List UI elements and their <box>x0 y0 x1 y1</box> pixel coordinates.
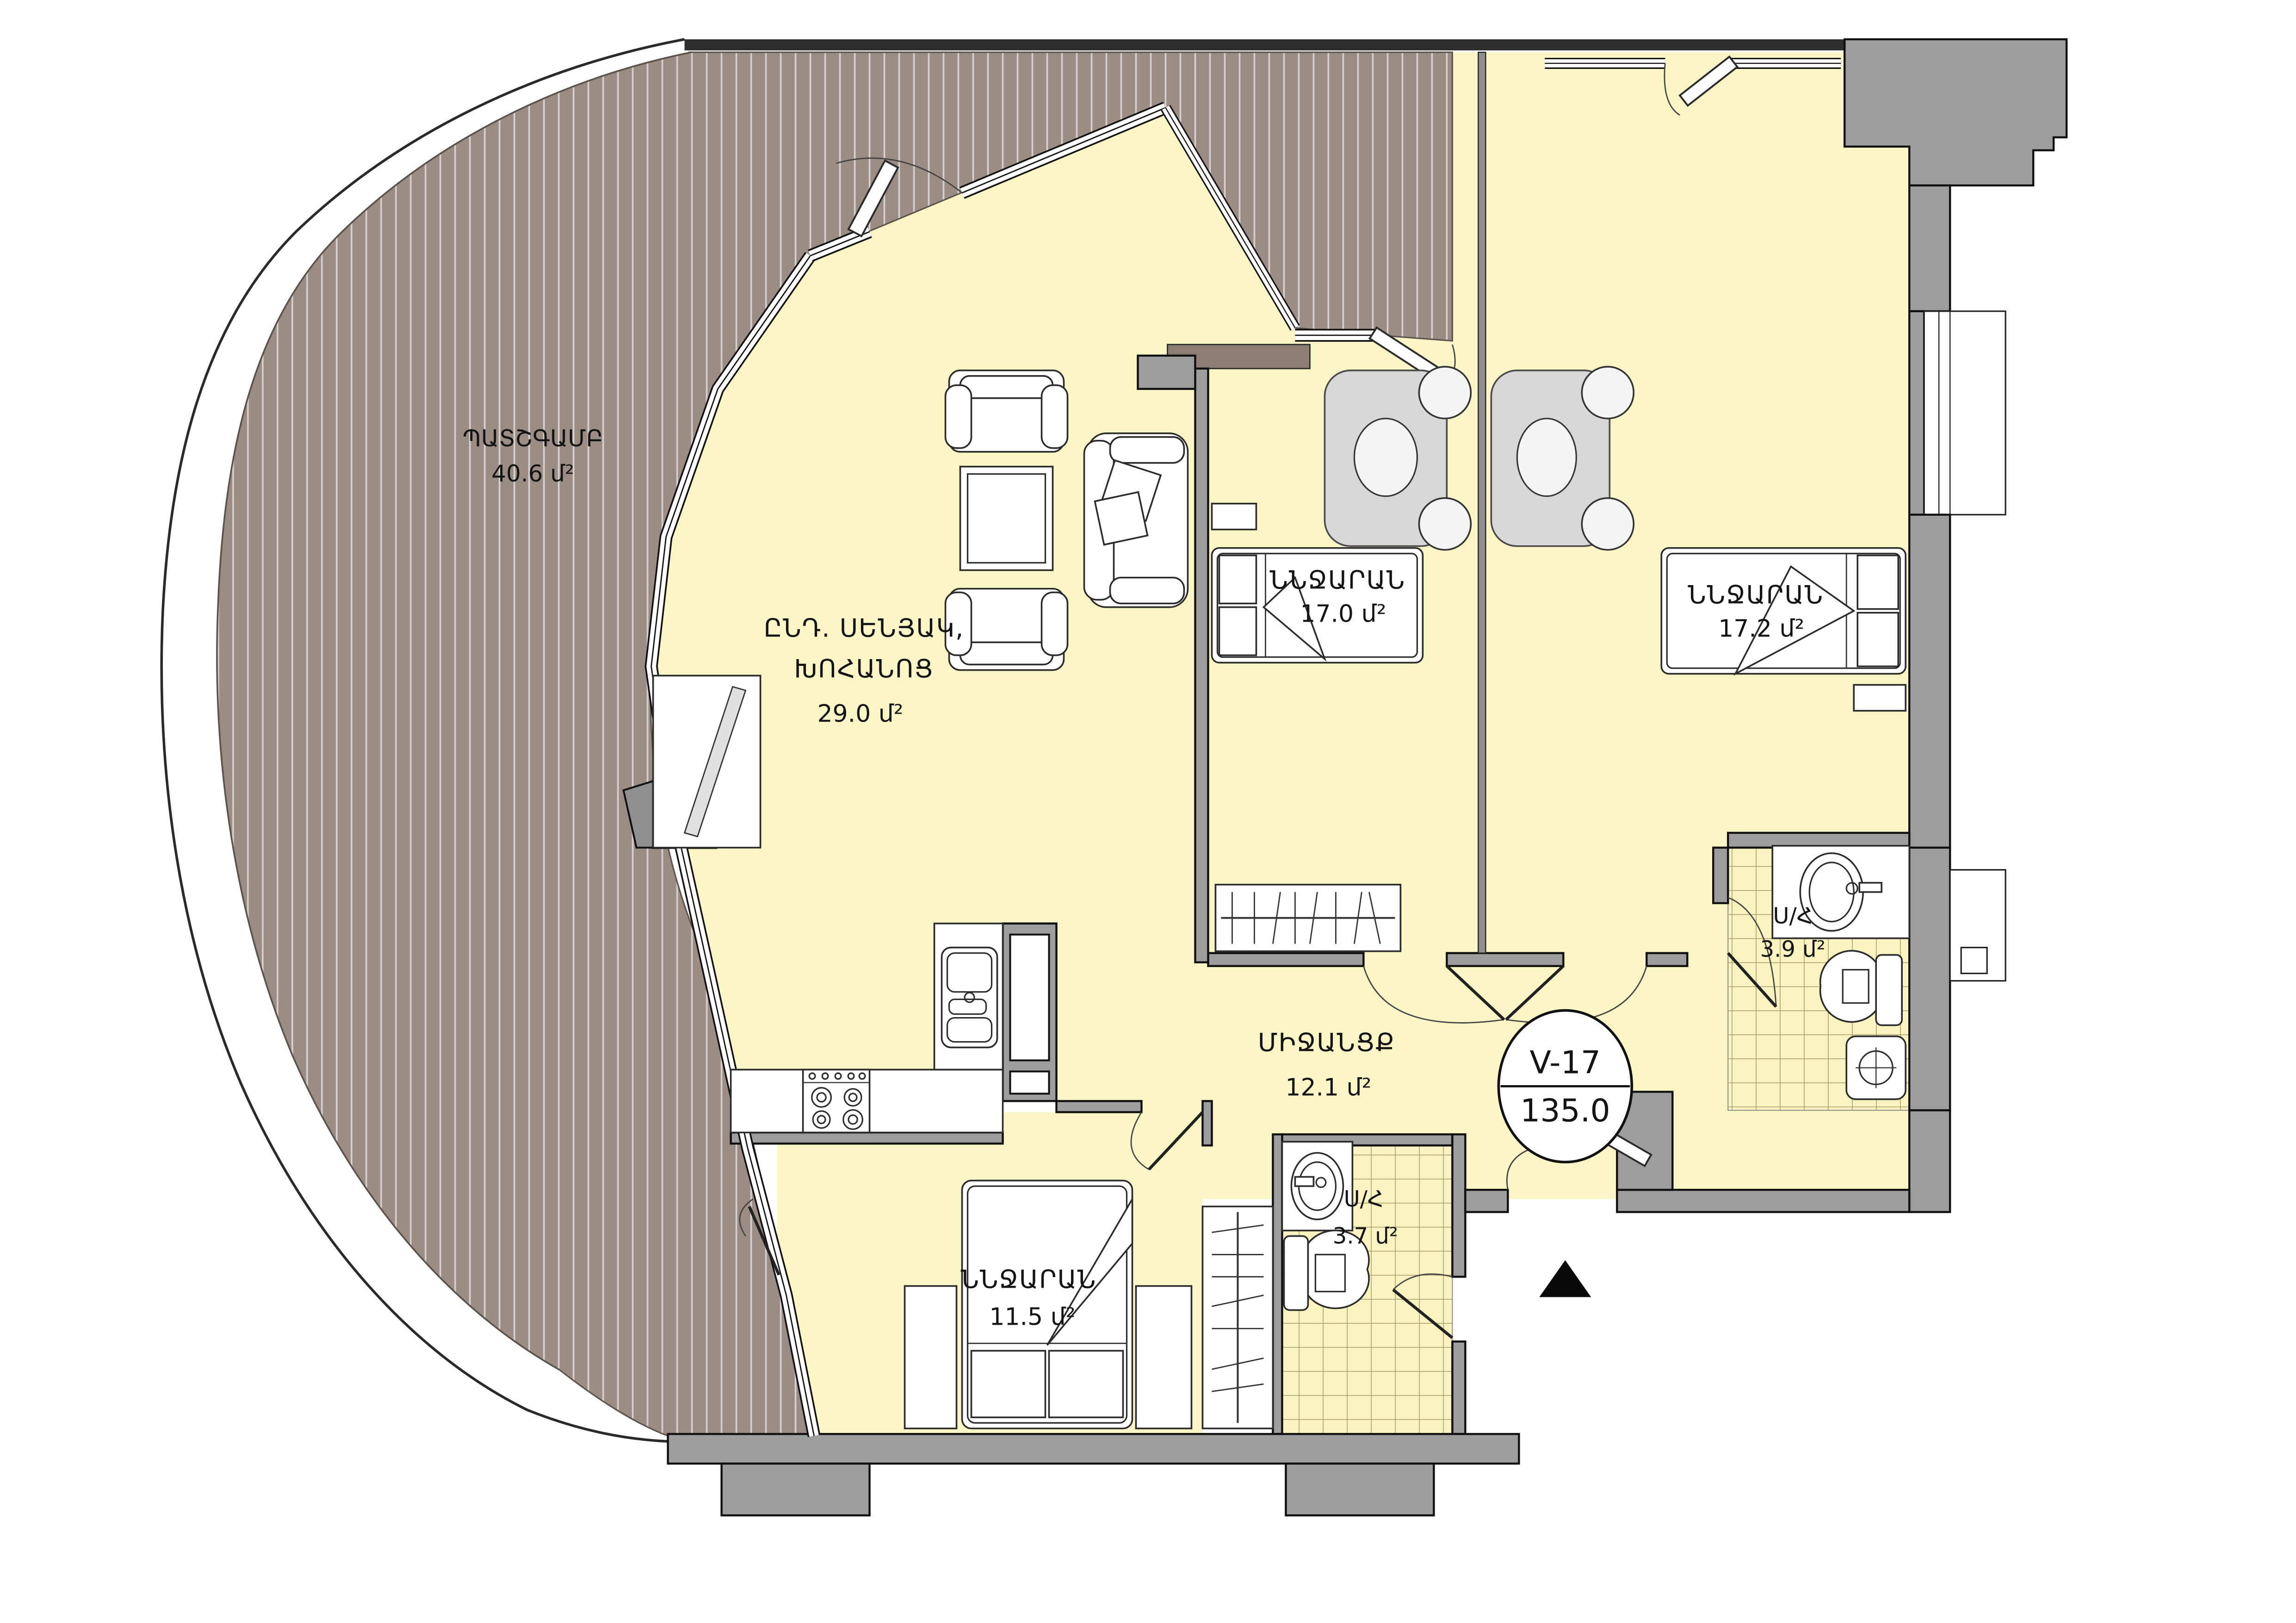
wall-bath2-right-b <box>1452 1341 1465 1434</box>
nightstand-icon <box>1854 685 1906 711</box>
label-bedroom3-area: 11.5 մ² <box>990 1303 1076 1331</box>
unit-total-area: 135.0 <box>1520 1092 1610 1129</box>
label-bath2-area: 3.7 մ² <box>1333 1223 1398 1249</box>
label-balcony-area: 40.6 մ² <box>491 460 574 487</box>
pillow-icon <box>1049 1351 1123 1417</box>
label-hall-area: 12.1 մ² <box>1285 1074 1371 1101</box>
wall-living-bedroom1 <box>1195 369 1208 963</box>
wall-bay-thin <box>1909 311 1924 515</box>
label-bath2-name: Ս/Հ <box>1344 1186 1384 1212</box>
wall-right-mid <box>1909 515 1950 848</box>
wall-right-lower <box>1909 1110 1950 1212</box>
chair-icon <box>1582 367 1634 419</box>
wall-pillar-bottom-2 <box>1286 1463 1434 1515</box>
unit-stamp: V-17 135.0 <box>1498 1010 1632 1162</box>
label-hall-name: ՄԻՋԱՆՑՔ <box>1258 1028 1395 1057</box>
label-living-name-1: ԸՆԴ. ՍԵՆՅԱԿ, <box>764 614 964 643</box>
pillow-icon <box>1219 555 1256 604</box>
kitchen-sink-icon <box>942 947 997 1047</box>
label-bedroom1-name: ՆՆՋԱՐԱՆ <box>1270 566 1406 595</box>
unit-code: V-17 <box>1530 1044 1601 1081</box>
washing-machine-icon <box>1846 1036 1906 1099</box>
wardrobe-icon <box>1202 1206 1273 1428</box>
wall-bath2-right-a <box>1452 1134 1465 1277</box>
pillow-icon <box>1857 613 1898 666</box>
label-bedroom3-name: ՆՆՋԱՐԱՆ <box>961 1265 1097 1294</box>
floor-plan-page: V-17 135.0 ՊԱՏՇԳԱՄԲ 40.6 մ² ԸՆԴ. ՍԵՆՅԱԿ,… <box>0 0 2296 1623</box>
label-bath1-area: 3.9 մ² <box>1760 936 1826 962</box>
bed-icon <box>1661 548 1906 674</box>
wardrobe-icon <box>1215 884 1400 951</box>
chair-icon <box>1419 367 1471 419</box>
pillow-icon <box>1857 555 1898 609</box>
wall-bath1-left <box>1713 847 1728 903</box>
wall-right-upper <box>1909 185 1950 311</box>
wall-entry-left <box>1465 1190 1508 1212</box>
wall-bottom <box>668 1434 1519 1463</box>
armchair-icon <box>946 370 1068 452</box>
chair-icon <box>1419 498 1471 550</box>
label-bedroom1-area: 17.0 մ² <box>1300 600 1386 628</box>
label-bedroom2-area: 17.2 մ² <box>1718 615 1804 643</box>
stove-icon <box>803 1069 870 1132</box>
wall-hall-1 <box>1208 953 1363 966</box>
coffee-table-icon <box>960 467 1053 570</box>
floor-plan-svg: V-17 135.0 ՊԱՏՇԳԱՄԲ 40.6 մ² ԸՆԴ. ՍԵՆՅԱԿ,… <box>0 0 2296 1623</box>
wall-bedroom3-jamb <box>1202 1101 1212 1145</box>
wall-living-stub <box>1138 356 1195 389</box>
wall-right-bath <box>1909 847 1950 1110</box>
wall-top <box>685 39 1844 50</box>
label-bedroom2-name: ՆՆՋԱՐԱՆ <box>1688 580 1824 610</box>
label-balcony-name: ՊԱՏՇԳԱՄԲ <box>463 425 603 452</box>
wall-hall-3 <box>1646 953 1687 966</box>
chair-icon <box>1582 498 1634 550</box>
nightstand-icon <box>905 1286 957 1428</box>
label-bath1-name: Ս/Հ <box>1773 903 1813 929</box>
nightstand-icon <box>1212 504 1256 530</box>
wall-bedroom3-top <box>1057 1101 1142 1112</box>
label-living-name-2: ԽՈՀԱՆՈՑ <box>794 654 934 684</box>
pillow-icon <box>1219 607 1256 655</box>
sofa-icon <box>1084 433 1188 607</box>
wall-kitchen-back <box>731 1132 1003 1143</box>
window-bay-bedroom-2 <box>1924 311 2005 515</box>
wall-partition-bedrooms <box>1478 52 1485 953</box>
wall-hall-2 <box>1447 953 1563 966</box>
tv-stand-icon <box>653 676 761 848</box>
shaft-box <box>1961 947 1987 973</box>
wall-pillar-bottom-1 <box>722 1463 870 1515</box>
pillow-icon <box>972 1351 1046 1417</box>
wall-entry-right <box>1617 1190 1909 1212</box>
nightstand-icon <box>1136 1286 1192 1428</box>
wall-bath2-left <box>1273 1134 1282 1434</box>
label-living-area: 29.0 մ² <box>817 700 904 728</box>
toilet-icon <box>1820 951 1902 1025</box>
